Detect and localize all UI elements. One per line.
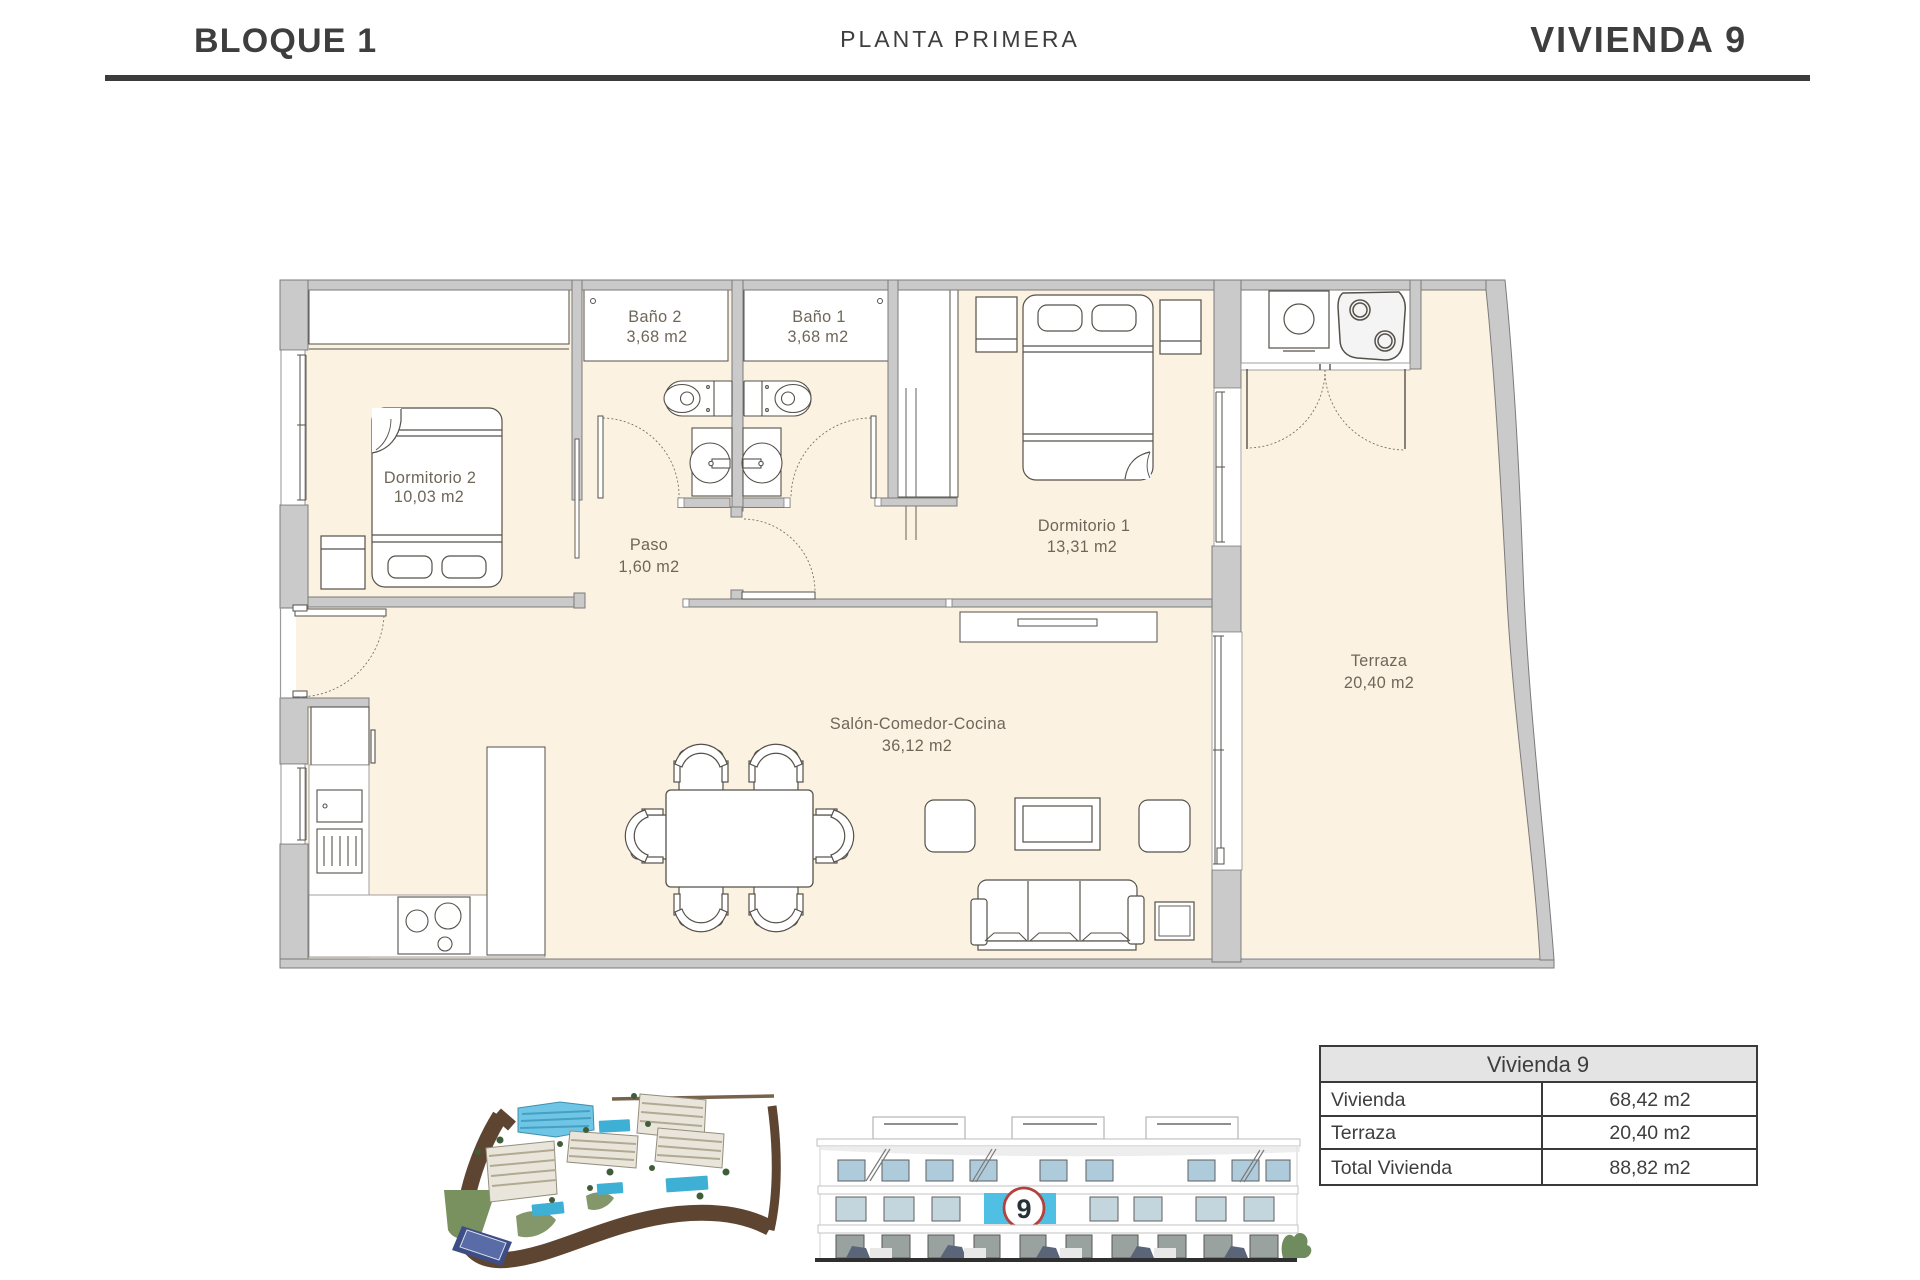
svg-text:9: 9 [1016, 1194, 1031, 1224]
svg-text:BLOQUE 1: BLOQUE 1 [194, 22, 377, 60]
svg-text:20,40 m2: 20,40 m2 [1609, 1122, 1690, 1144]
svg-text:Vivienda 9: Vivienda 9 [1487, 1052, 1589, 1077]
svg-text:1,60 m2: 1,60 m2 [619, 558, 680, 576]
svg-text:Baño 2: Baño 2 [628, 308, 681, 326]
svg-text:68,42 m2: 68,42 m2 [1609, 1089, 1690, 1111]
svg-text:Paso: Paso [630, 536, 668, 554]
svg-text:Vivienda: Vivienda [1331, 1089, 1406, 1111]
svg-text:20,40 m2: 20,40 m2 [1344, 674, 1414, 692]
svg-text:Salón-Comedor-Cocina: Salón-Comedor-Cocina [830, 715, 1006, 733]
svg-text:13,31 m2: 13,31 m2 [1047, 538, 1117, 556]
svg-text:36,12 m2: 36,12 m2 [882, 737, 952, 755]
svg-text:PLANTA PRIMERA: PLANTA PRIMERA [840, 26, 1080, 52]
svg-text:Terraza: Terraza [1331, 1122, 1396, 1144]
svg-text:Total Vivienda: Total Vivienda [1331, 1157, 1452, 1179]
svg-text:Dormitorio 2: Dormitorio 2 [384, 469, 476, 487]
svg-text:88,82 m2: 88,82 m2 [1609, 1157, 1690, 1179]
svg-text:VIVIENDA 9: VIVIENDA 9 [1530, 19, 1747, 60]
svg-text:3,68 m2: 3,68 m2 [788, 328, 849, 346]
svg-text:3,68 m2: 3,68 m2 [627, 328, 688, 346]
svg-text:Baño 1: Baño 1 [792, 308, 845, 326]
svg-text:Terraza: Terraza [1351, 652, 1407, 670]
svg-text:10,03 m2: 10,03 m2 [394, 488, 464, 506]
svg-text:Dormitorio 1: Dormitorio 1 [1038, 517, 1130, 535]
